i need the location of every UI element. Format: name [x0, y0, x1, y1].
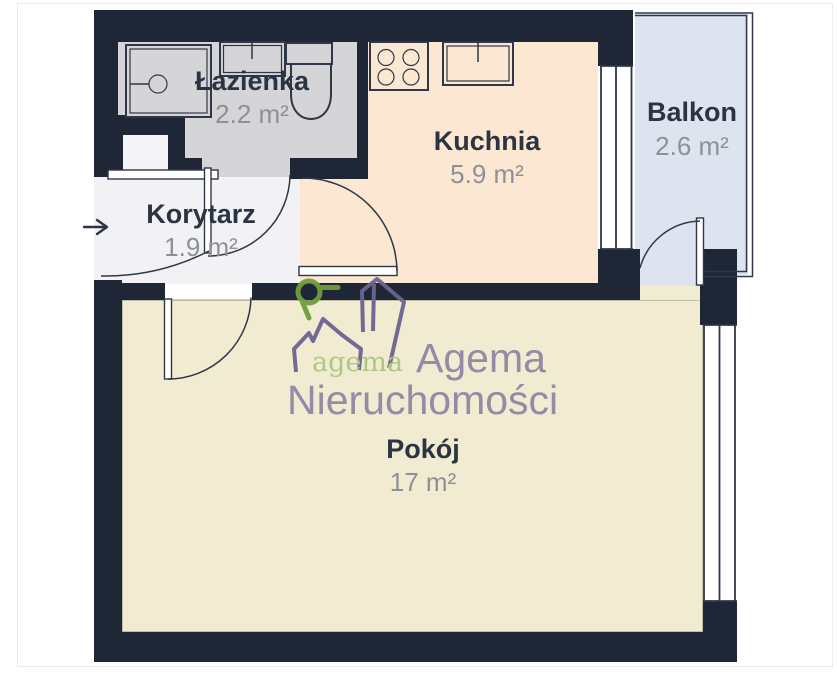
watermark-agema-small: agema	[312, 347, 403, 378]
wall-right-lower	[703, 601, 737, 662]
label-pokoj: Pokój	[386, 434, 460, 464]
stove-icon	[370, 42, 428, 90]
wall-top	[94, 10, 633, 42]
wall-kitchen-room	[252, 283, 640, 300]
kitchen-sink-icon	[443, 42, 513, 85]
wall-below-bathroom	[290, 158, 368, 179]
label-balkon: Balkon	[647, 97, 737, 127]
wall-right-upper	[700, 249, 737, 325]
area-kuchnia: 5.9 m²	[450, 159, 524, 189]
wall-bath-kitchen	[357, 42, 368, 158]
balcony-door-passage	[640, 249, 700, 288]
wall-niche	[123, 135, 168, 172]
floor-plan: Łazienka 2.2 m² Kuchnia 5.9 m² Balkon 2.…	[0, 0, 837, 700]
wall-kitchen-right-upper	[598, 42, 633, 66]
label-kuchnia: Kuchnia	[434, 126, 541, 156]
wall-left-lower	[94, 280, 122, 662]
wall-bottom	[94, 632, 737, 662]
area-balkon: 2.6 m²	[655, 131, 729, 161]
floor-plan-page: Łazienka 2.2 m² Kuchnia 5.9 m² Balkon 2.…	[0, 0, 837, 700]
kitchen-window	[600, 66, 633, 249]
area-korytarz: 1.9 m²	[164, 232, 238, 262]
room-floor-passage	[640, 286, 700, 300]
watermark-brand-line2: Nieruchomości	[287, 377, 558, 423]
wardrobe-icon	[108, 170, 218, 179]
label-korytarz: Korytarz	[146, 199, 256, 229]
wall-kitchen-right-lower	[598, 249, 640, 300]
room-window	[703, 325, 737, 601]
area-pokoj: 17 m²	[390, 467, 457, 497]
wall-hall-room	[94, 283, 165, 300]
label-lazienka: Łazienka	[195, 66, 310, 96]
area-lazienka: 2.2 m²	[215, 99, 289, 129]
room-floor	[122, 300, 703, 632]
watermark-brand-line1: Agema	[416, 335, 546, 381]
